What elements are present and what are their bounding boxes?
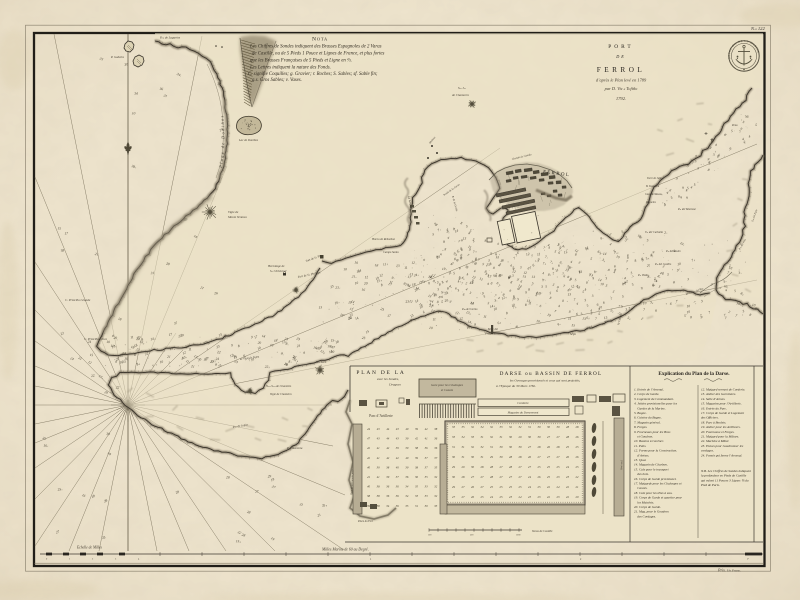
svg-text:36: 36 <box>386 494 390 498</box>
svg-text:26: 26 <box>576 455 580 459</box>
svg-text:21. Maigard pour la Mâture.: 21. Maigard pour la Mâture. <box>701 435 739 439</box>
svg-text:30: 30 <box>519 445 523 449</box>
svg-text:28: 28 <box>519 455 523 459</box>
svg-text:1. Entrée de l’Arsenal.: 1. Entrée de l’Arsenal. <box>634 388 664 392</box>
svg-text:27: 27 <box>538 455 542 459</box>
svg-text:27: 27 <box>481 485 485 489</box>
svg-text:la profondeur en Pieds de Cast: la profondeur en Pieds de Castille <box>701 474 747 478</box>
svg-text:28: 28 <box>576 425 580 429</box>
svg-text:38: 38 <box>377 494 381 498</box>
svg-text:27: 27 <box>557 435 561 439</box>
svg-text:42: 42 <box>386 456 390 460</box>
svg-text:28: 28 <box>509 465 513 469</box>
svg-text:B. Taxonera: B. Taxonera <box>646 185 660 188</box>
svg-text:34: 34 <box>134 92 138 96</box>
svg-text:37: 37 <box>434 456 438 460</box>
svg-text:Prix. Un Franc.: Prix. Un Franc. <box>717 568 741 573</box>
svg-text:32: 32 <box>509 425 513 429</box>
svg-text:36: 36 <box>386 485 390 489</box>
svg-text:Gare pour les Chaloupes: Gare pour les Chaloupes <box>431 383 464 387</box>
svg-text:1792.: 1792. <box>616 96 626 101</box>
svg-text:12. Forme pour la Construction: 12. Forme pour la Construction. <box>634 449 677 453</box>
svg-text:27: 27 <box>528 465 532 469</box>
svg-text:40: 40 <box>367 465 371 469</box>
svg-text:14: 14 <box>603 252 607 256</box>
svg-text:P.ta Avarenta: P.ta Avarenta <box>286 446 303 450</box>
svg-text:Milles Marins de 60 au Degré.: Milles Marins de 60 au Degré. <box>321 548 369 552</box>
svg-text:33: 33 <box>500 425 504 429</box>
svg-text:cordages.: cordages. <box>701 449 714 453</box>
svg-text:21. Mag. pour le Goudron: 21. Mag. pour le Goudron <box>634 510 669 514</box>
svg-text:25: 25 <box>557 465 561 469</box>
svg-text:29: 29 <box>490 455 494 459</box>
svg-text:25: 25 <box>576 465 580 469</box>
svg-text:13: 13 <box>495 255 499 259</box>
svg-text:34: 34 <box>405 494 409 498</box>
svg-text:Torre de Jubia: Torre de Jubia <box>647 177 663 180</box>
svg-text:27: 27 <box>547 455 551 459</box>
svg-text:Magasins du Devarement: Magasins du Devarement <box>507 411 539 415</box>
svg-text:37: 37 <box>425 465 429 469</box>
svg-text:30: 30 <box>547 425 551 429</box>
svg-text:Vigie de: Vigie de <box>228 210 239 214</box>
svg-text:36: 36 <box>434 446 438 450</box>
svg-text:24: 24 <box>557 485 561 489</box>
svg-text:10. Bassins à Caréner.: 10. Bassins à Caréner. <box>634 439 664 443</box>
svg-text:10: 10 <box>643 301 647 305</box>
svg-text:Quai neuf: Quai neuf <box>620 460 623 470</box>
svg-text:P. Gabeira: P. Gabeira <box>110 55 124 59</box>
svg-text:26: 26 <box>547 445 551 449</box>
svg-text:16. Corps de Garde provisionel: 16. Corps de Garde provisionel. <box>634 477 677 481</box>
svg-text:5. Bagne.: 5. Bagne. <box>634 411 647 415</box>
svg-text:36: 36 <box>160 87 164 91</box>
svg-text:32: 32 <box>471 425 475 429</box>
svg-text:17: 17 <box>65 232 69 236</box>
svg-text:20: 20 <box>364 282 368 286</box>
svg-text:FERROL: FERROL <box>597 66 646 74</box>
svg-text:24: 24 <box>215 357 219 361</box>
svg-text:13: 13 <box>396 264 400 268</box>
svg-text:26: 26 <box>471 485 475 489</box>
svg-text:39: 39 <box>405 465 409 469</box>
svg-text:43: 43 <box>377 437 381 441</box>
svg-text:3. Logement du Commandant.: 3. Logement du Commandant. <box>634 397 674 401</box>
svg-text:les Matelots.: les Matelots. <box>634 500 654 504</box>
svg-text:18. Parc à Boulets.: 18. Parc à Boulets. <box>701 420 726 424</box>
svg-text:27: 27 <box>462 485 466 489</box>
svg-text:30: 30 <box>528 435 532 439</box>
svg-text:30: 30 <box>500 455 504 459</box>
svg-text:30: 30 <box>471 465 475 469</box>
svg-text:36: 36 <box>396 504 400 508</box>
svg-text:13: 13 <box>488 274 492 278</box>
svg-text:32: 32 <box>481 445 485 449</box>
svg-text:11: 11 <box>483 314 487 318</box>
svg-text:20: 20 <box>257 341 261 345</box>
svg-text:23: 23 <box>509 495 513 499</box>
svg-text:40: 40 <box>405 427 409 431</box>
svg-text:21: 21 <box>167 355 171 359</box>
svg-text:S.n J.n: S.n J.n <box>458 86 466 90</box>
svg-text:22: 22 <box>217 350 221 354</box>
svg-text:30: 30 <box>452 475 456 479</box>
svg-text:32: 32 <box>519 425 523 429</box>
svg-text:25: 25 <box>509 485 513 489</box>
svg-text:39: 39 <box>415 427 419 431</box>
svg-text:33: 33 <box>425 494 429 498</box>
svg-text:22: 22 <box>547 495 551 499</box>
svg-text:32: 32 <box>490 425 494 429</box>
svg-text:36: 36 <box>434 437 438 441</box>
svg-text:33: 33 <box>415 494 419 498</box>
svg-text:31: 31 <box>462 445 466 449</box>
svg-text:DE: DE <box>615 54 626 59</box>
svg-text:DARSE ou BASSIN DE FERROL: DARSE ou BASSIN DE FERROL <box>500 371 603 377</box>
svg-text:28: 28 <box>557 445 561 449</box>
svg-text:S.t Christoval: S.t Christoval <box>270 269 286 273</box>
svg-text:13. Atelier des Garnitures.: 13. Atelier des Garnitures. <box>701 392 736 396</box>
svg-text:36: 36 <box>405 475 409 479</box>
svg-text:41: 41 <box>377 475 381 479</box>
svg-text:4. Jettées provisionelles pour: 4. Jettées provisionelles pour les <box>634 402 678 406</box>
svg-text:29: 29 <box>452 485 456 489</box>
svg-text:26: 26 <box>576 435 580 439</box>
svg-text:28: 28 <box>481 465 485 469</box>
svg-text:Corderie: Corderie <box>517 401 529 405</box>
svg-text:Mole del: Mole del <box>487 328 498 331</box>
svg-text:13: 13 <box>567 292 571 296</box>
svg-text:30: 30 <box>509 435 513 439</box>
svg-text:38: 38 <box>415 465 419 469</box>
svg-text:24. Fossés qui ferme l’Arsenal: 24. Fossés qui ferme l’Arsenal. <box>701 453 742 457</box>
svg-text:27: 27 <box>452 495 456 499</box>
svg-text:28: 28 <box>462 475 466 479</box>
svg-text:42: 42 <box>425 427 429 431</box>
svg-text:22: 22 <box>566 495 570 499</box>
svg-text:10: 10 <box>600 282 604 286</box>
svg-text:Lac de Doniños: Lac de Doniños <box>238 138 259 142</box>
svg-text:18: 18 <box>316 346 320 350</box>
svg-text:22. Machine à Mâter.: 22. Machine à Mâter. <box>701 439 730 443</box>
svg-text:par D. Vic.e Tofiño: par D. Vic.e Tofiño <box>604 86 638 91</box>
svg-text:Casa del Roxas: Casa del Roxas <box>645 193 662 196</box>
svg-text:37: 37 <box>396 475 400 479</box>
svg-text:36: 36 <box>425 446 429 450</box>
svg-text:38: 38 <box>377 485 381 489</box>
svg-text:18: 18 <box>274 339 278 343</box>
svg-text:17: 17 <box>387 314 391 318</box>
svg-text:41: 41 <box>377 446 381 450</box>
svg-text:30: 30 <box>425 504 429 508</box>
svg-text:d’Avisos.: d’Avisos. <box>634 453 649 457</box>
svg-text:31: 31 <box>500 435 504 439</box>
svg-text:g.s. Gros Sables; v. Vases.: g.s. Gros Sables; v. Vases. <box>252 78 302 83</box>
svg-text:33: 33 <box>434 504 438 508</box>
svg-text:26: 26 <box>471 495 475 499</box>
svg-text:Explication du Plan de la Dars: Explication du Plan de la Darse. <box>658 371 730 377</box>
svg-text:C. Prioriño Grande: C. Prioriño Grande <box>65 298 91 302</box>
svg-text:12: 12 <box>411 261 415 265</box>
svg-text:40: 40 <box>396 465 400 469</box>
svg-text:42: 42 <box>396 456 400 460</box>
svg-text:17. Maigarde pour les Chaloupe: 17. Maigarde pour les Chaloupes et <box>634 482 682 486</box>
svg-text:22: 22 <box>566 485 570 489</box>
svg-text:39: 39 <box>405 446 409 450</box>
svg-text:42: 42 <box>367 446 371 450</box>
svg-text:et Canots: et Canots <box>441 388 454 392</box>
svg-text:30: 30 <box>452 455 456 459</box>
svg-text:30: 30 <box>538 425 542 429</box>
svg-text:27: 27 <box>528 445 532 449</box>
svg-text:13: 13 <box>463 237 467 241</box>
svg-text:24: 24 <box>490 495 494 499</box>
svg-text:27: 27 <box>557 455 561 459</box>
svg-text:31: 31 <box>415 504 419 508</box>
svg-text:42: 42 <box>367 456 371 460</box>
svg-text:36: 36 <box>396 494 400 498</box>
svg-text:P.ta de Lagartos: P.ta de Lagartos <box>159 36 181 40</box>
svg-text:12. Maigard servant de Corderi: 12. Maigard servant de Corderie. <box>701 388 745 392</box>
svg-text:C. signifie Coquilles; g. Grav: C. signifie Coquilles; g. Gravier; r. Ro… <box>248 72 378 77</box>
svg-text:25: 25 <box>566 445 570 449</box>
svg-text:41: 41 <box>377 456 381 460</box>
svg-text:31: 31 <box>151 271 155 275</box>
svg-text:25: 25 <box>547 465 551 469</box>
svg-text:d’après le Plan levé en 1789: d’après le Plan levé en 1789 <box>596 78 647 83</box>
svg-text:Seijo: Seijo <box>570 332 576 336</box>
svg-text:24: 24 <box>528 475 532 479</box>
svg-text:33: 33 <box>452 435 456 439</box>
svg-text:5: 5 <box>549 291 551 295</box>
svg-text:32: 32 <box>471 445 475 449</box>
svg-text:30: 30 <box>471 455 475 459</box>
svg-text:25: 25 <box>538 465 542 469</box>
svg-text:28: 28 <box>566 435 570 439</box>
svg-text:16. Entrée du Parc.: 16. Entrée du Parc. <box>701 406 727 410</box>
svg-text:de Chamorro: de Chamorro <box>452 93 469 97</box>
svg-text:23. Etuves pour Goudronner les: 23. Etuves pour Goudronner les <box>701 444 744 448</box>
svg-text:28: 28 <box>226 475 230 479</box>
svg-text:29: 29 <box>452 465 456 469</box>
svg-text:38: 38 <box>415 446 419 450</box>
svg-text:44: 44 <box>386 427 390 431</box>
svg-text:22: 22 <box>116 385 120 389</box>
svg-text:35: 35 <box>425 475 429 479</box>
svg-text:Canots.: Canots. <box>634 486 648 490</box>
svg-text:38: 38 <box>377 504 381 508</box>
svg-text:PORT: PORT <box>608 44 633 50</box>
svg-text:18. Cale pour les têtes à eau.: 18. Cale pour les têtes à eau. <box>634 491 673 495</box>
svg-text:20. Corps de Garde.: 20. Corps de Garde. <box>634 505 661 509</box>
svg-text:24: 24 <box>528 485 532 489</box>
svg-text:Gardes de la Marine.: Gardes de la Marine. <box>634 406 666 410</box>
svg-text:36: 36 <box>415 475 419 479</box>
svg-text:39: 39 <box>386 475 390 479</box>
svg-text:32: 32 <box>490 435 494 439</box>
svg-text:Regueira: Regueira <box>645 201 657 204</box>
svg-text:9. Fourneaux pour les Bras: 9. Fourneaux pour les Bras <box>634 430 671 434</box>
svg-text:13: 13 <box>318 305 322 309</box>
svg-text:10: 10 <box>687 304 691 308</box>
svg-text:30: 30 <box>500 445 504 449</box>
svg-text:22: 22 <box>547 485 551 489</box>
svg-text:43: 43 <box>377 427 381 431</box>
svg-text:15. Cale pour le transport: 15. Cale pour le transport <box>634 467 669 471</box>
svg-text:N.o Seco: N.o Seco <box>315 360 327 364</box>
svg-text:37: 37 <box>425 456 429 460</box>
svg-text:Echelle de Milles: Echelle de Milles <box>76 546 103 550</box>
svg-text:41: 41 <box>425 437 429 441</box>
svg-text:23: 23 <box>557 495 561 499</box>
svg-text:Place du Fort: Place du Fort <box>357 520 373 523</box>
svg-text:28: 28 <box>566 425 570 429</box>
svg-text:23: 23 <box>566 475 570 479</box>
svg-text:27: 27 <box>519 465 523 469</box>
svg-text:38: 38 <box>434 427 438 431</box>
svg-text:10: 10 <box>343 267 347 271</box>
svg-text:26: 26 <box>214 291 218 295</box>
svg-text:39: 39 <box>396 446 400 450</box>
svg-text:31: 31 <box>528 425 532 429</box>
svg-text:29: 29 <box>462 465 466 469</box>
svg-text:des Officiers.: des Officiers. <box>701 416 719 420</box>
svg-text:12: 12 <box>365 275 369 279</box>
svg-text:32: 32 <box>434 485 438 489</box>
svg-text:de Castille, ou de 5 Pieds 1 P: de Castille, ou de 5 Pieds 1 Pouce et Li… <box>252 52 385 57</box>
svg-text:44: 44 <box>386 437 390 441</box>
svg-text:34: 34 <box>386 504 390 508</box>
svg-text:31: 31 <box>462 455 466 459</box>
svg-text:qui valent 11 Pouces 3 Lignes: qui valent 11 Pouces 3 Lignes ⅙ du <box>701 478 749 482</box>
svg-text:Campo Santo: Campo Santo <box>383 250 399 254</box>
svg-text:40: 40 <box>367 485 371 489</box>
svg-text:36: 36 <box>396 485 400 489</box>
svg-text:25: 25 <box>500 495 504 499</box>
svg-text:15. Magasins pour l’Artillerie: 15. Magasins pour l’Artillerie. <box>701 402 742 406</box>
svg-text:des bois.: des bois. <box>634 472 649 476</box>
svg-text:20. Fourneaux et Forges.: 20. Fourneaux et Forges. <box>701 430 735 434</box>
svg-text:31: 31 <box>481 455 485 459</box>
svg-text:35: 35 <box>462 425 466 429</box>
svg-text:42: 42 <box>386 446 390 450</box>
svg-text:35: 35 <box>415 485 419 489</box>
svg-text:16: 16 <box>361 288 365 292</box>
svg-text:26: 26 <box>566 455 570 459</box>
svg-text:Les Lettres indiquent la natur: Les Lettres indiquent la nature des Fond… <box>249 66 331 71</box>
svg-text:28: 28 <box>509 455 513 459</box>
svg-text:N.B. Les Chiffres de Sondes in: N.B. Les Chiffres de Sondes indiquent <box>700 469 751 473</box>
svg-text:3: 3 <box>500 262 502 266</box>
svg-text:6: 6 <box>576 312 578 316</box>
svg-text:39: 39 <box>367 504 371 508</box>
svg-text:41: 41 <box>367 475 371 479</box>
svg-text:39: 39 <box>415 456 419 460</box>
svg-text:39: 39 <box>377 465 381 469</box>
svg-text:25: 25 <box>500 485 504 489</box>
svg-text:24: 24 <box>519 495 523 499</box>
svg-text:2. Corps de Garde.: 2. Corps de Garde. <box>634 392 659 396</box>
svg-text:19. Atelier pour les Artilleur: 19. Atelier pour les Artilleurs. <box>701 425 741 429</box>
svg-text:25: 25 <box>576 445 580 449</box>
svg-text:Horno de Rebordon: Horno de Rebordon <box>371 237 396 241</box>
svg-text:43: 43 <box>396 427 400 431</box>
svg-text:Les Chiffres de Sondes indique: Les Chiffres de Sondes indiquent des Bra… <box>249 45 382 50</box>
svg-text:30: 30 <box>538 435 542 439</box>
svg-text:27: 27 <box>481 475 485 479</box>
svg-text:38: 38 <box>386 465 390 469</box>
svg-text:20: 20 <box>576 495 580 499</box>
svg-text:34: 34 <box>481 425 485 429</box>
svg-text:27: 27 <box>500 465 504 469</box>
svg-text:25: 25 <box>490 485 494 489</box>
svg-text:38: 38 <box>367 494 371 498</box>
svg-text:27: 27 <box>255 489 259 493</box>
svg-text:Vigie de Chanteiro: Vigie de Chanteiro <box>270 392 292 396</box>
svg-text:11: 11 <box>432 317 436 321</box>
svg-text:13. Quai.: 13. Quai. <box>634 458 647 462</box>
svg-text:31: 31 <box>481 435 485 439</box>
svg-text:33: 33 <box>452 425 456 429</box>
svg-text:24: 24 <box>566 465 570 469</box>
svg-text:27: 27 <box>471 475 475 479</box>
svg-text:5: 5 <box>432 232 434 236</box>
svg-text:44: 44 <box>367 427 371 431</box>
svg-text:31: 31 <box>490 445 494 449</box>
svg-text:14: 14 <box>358 269 362 273</box>
svg-text:10: 10 <box>106 340 110 344</box>
svg-text:24: 24 <box>88 340 92 344</box>
svg-text:32: 32 <box>434 494 438 498</box>
svg-text:15: 15 <box>90 353 94 357</box>
svg-text:des Cordages.: des Cordages. <box>634 514 656 518</box>
svg-text:12: 12 <box>523 271 527 275</box>
svg-text:30: 30 <box>557 425 561 429</box>
svg-text:15: 15 <box>57 226 61 230</box>
svg-text:31: 31 <box>452 445 456 449</box>
svg-text:35: 35 <box>405 504 409 508</box>
svg-text:34: 34 <box>462 435 466 439</box>
svg-text:25: 25 <box>538 485 542 489</box>
svg-text:11: 11 <box>568 316 572 320</box>
svg-text:à l’Epoque du 30 Mars 1782.: à l’Epoque du 30 Mars 1782. <box>496 384 536 388</box>
svg-text:25: 25 <box>481 495 485 499</box>
svg-text:et Goudron.: et Goudron. <box>634 435 653 439</box>
svg-text:PLAN DE LA: PLAN DE LA <box>356 370 405 376</box>
svg-text:7. Magasin général.: 7. Magasin général. <box>634 420 661 424</box>
svg-text:26: 26 <box>538 475 542 479</box>
svg-text:Varas de Castille: Varas de Castille <box>532 529 553 533</box>
svg-text:25: 25 <box>547 475 551 479</box>
svg-text:11. Puits.: 11. Puits. <box>634 444 646 448</box>
svg-text:42: 42 <box>415 437 419 441</box>
svg-text:39: 39 <box>405 437 409 441</box>
svg-text:27: 27 <box>500 475 504 479</box>
svg-text:Promontorio: Promontorio <box>484 333 500 336</box>
svg-text:32: 32 <box>434 475 438 479</box>
svg-text:21: 21 <box>576 485 580 489</box>
svg-text:N.o 122: N.o 122 <box>750 26 765 31</box>
svg-text:P.a del Montone: P.a del Montone <box>677 208 697 211</box>
svg-text:27: 27 <box>519 475 523 479</box>
svg-text:8. Forges.: 8. Forges. <box>634 425 648 429</box>
svg-text:que les Brasses Françaises de: que les Brasses Françaises de 5 Pieds et… <box>250 59 352 64</box>
svg-text:22: 22 <box>576 475 580 479</box>
svg-text:27: 27 <box>462 495 466 499</box>
svg-text:39: 39 <box>217 82 221 86</box>
svg-text:26: 26 <box>528 455 532 459</box>
svg-text:Hermitage de: Hermitage de <box>267 264 285 268</box>
